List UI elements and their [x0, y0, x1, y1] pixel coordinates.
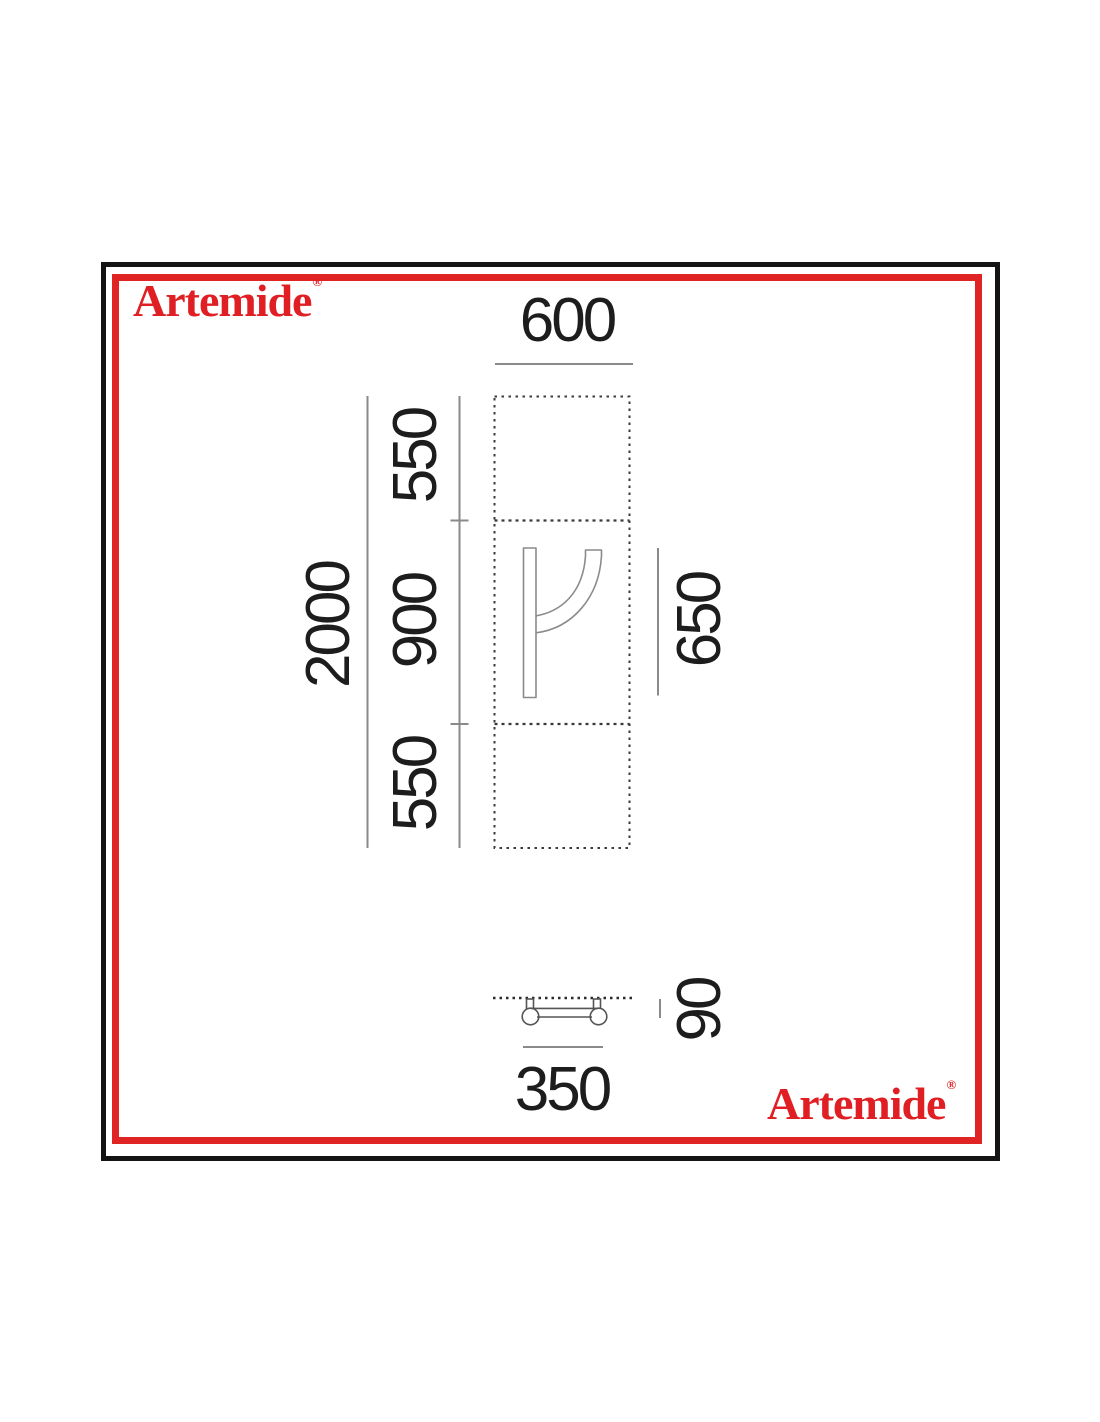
fixture-endcap-right [590, 1008, 607, 1025]
dim-label-middle-segment: 900 [381, 572, 450, 668]
dim-label-body-height: 650 [665, 571, 734, 667]
dim-label-total-height: 2000 [294, 561, 363, 688]
dim-label-top-segment: 550 [381, 407, 450, 503]
lamp-branch-arm [535, 550, 602, 633]
page: Artemide® Artemide® 600 550 900 550 2000… [0, 0, 1100, 1422]
fixture-endcap-left [522, 1008, 539, 1025]
lamp-body-bar [524, 548, 537, 698]
dim-label-side-width: 350 [515, 1055, 611, 1124]
dim-label-depth: 90 [665, 977, 734, 1041]
dim-label-bottom-segment: 550 [381, 735, 450, 831]
dim-label-width: 600 [520, 286, 616, 355]
dimension-diagram: 600 550 900 550 2000 650 [0, 0, 1100, 1422]
